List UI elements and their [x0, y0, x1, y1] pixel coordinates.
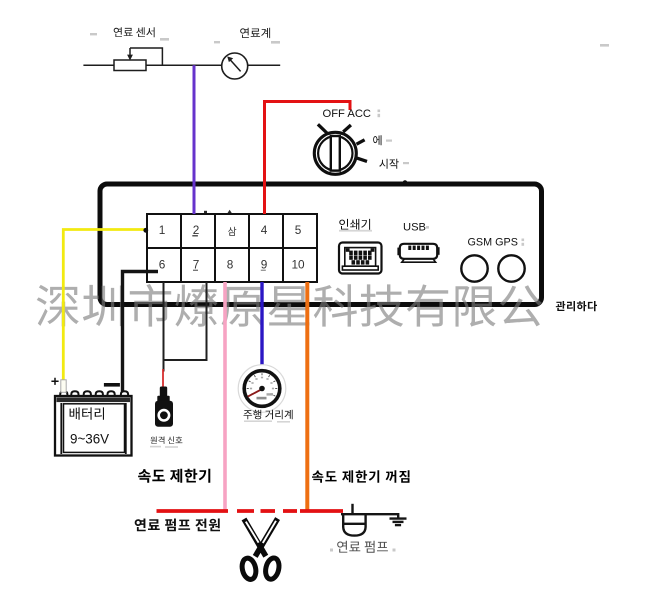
svg-text:9~36V: 9~36V	[70, 432, 109, 447]
svg-text:OFF ACC: OFF ACC	[323, 108, 371, 120]
svg-text:4: 4	[261, 223, 268, 237]
svg-text:7: 7	[193, 258, 200, 272]
svg-text:GSM GPS: GSM GPS	[468, 237, 518, 249]
svg-text:8: 8	[227, 258, 234, 272]
svg-text:9: 9	[261, 258, 268, 272]
svg-text:1: 1	[159, 223, 166, 237]
svg-text:6: 6	[159, 258, 166, 272]
svg-text:USB: USB	[403, 222, 426, 234]
svg-text:10: 10	[291, 258, 305, 272]
svg-text:5: 5	[295, 223, 302, 237]
